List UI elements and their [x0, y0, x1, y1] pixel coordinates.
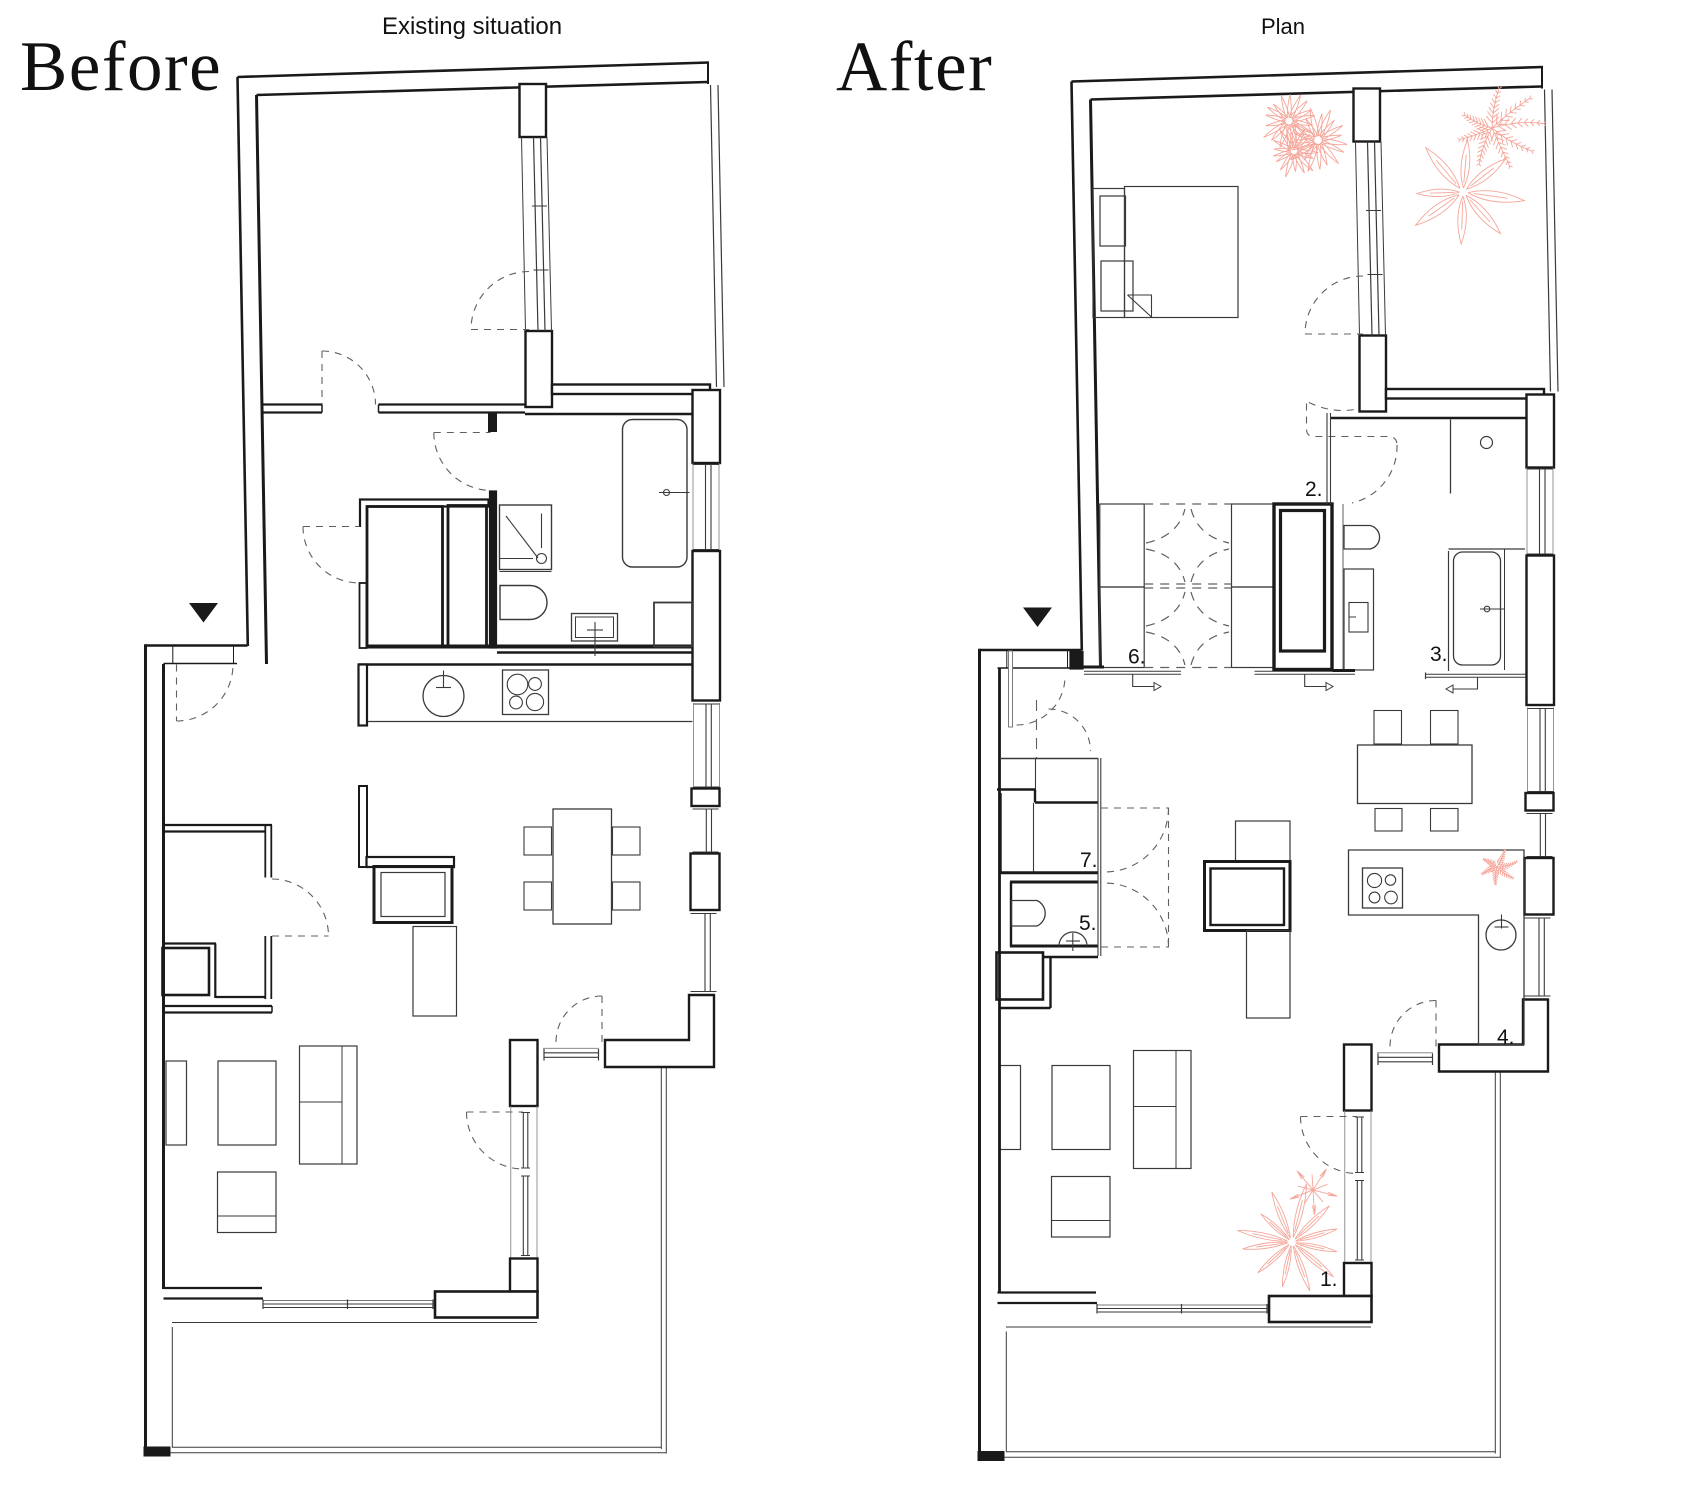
- svg-text:7.: 7.: [1080, 849, 1098, 872]
- svg-text:5.: 5.: [1079, 912, 1097, 935]
- svg-text:After: After: [836, 28, 993, 106]
- svg-text:Existing situation: Existing situation: [382, 13, 562, 40]
- svg-text:Before: Before: [20, 28, 222, 106]
- svg-text:4.: 4.: [1497, 1026, 1515, 1049]
- svg-text:2.: 2.: [1305, 478, 1323, 501]
- svg-text:1.: 1.: [1320, 1268, 1338, 1291]
- svg-text:6.: 6.: [1128, 646, 1146, 669]
- svg-text:Plan: Plan: [1261, 14, 1305, 39]
- svg-text:3.: 3.: [1430, 643, 1448, 666]
